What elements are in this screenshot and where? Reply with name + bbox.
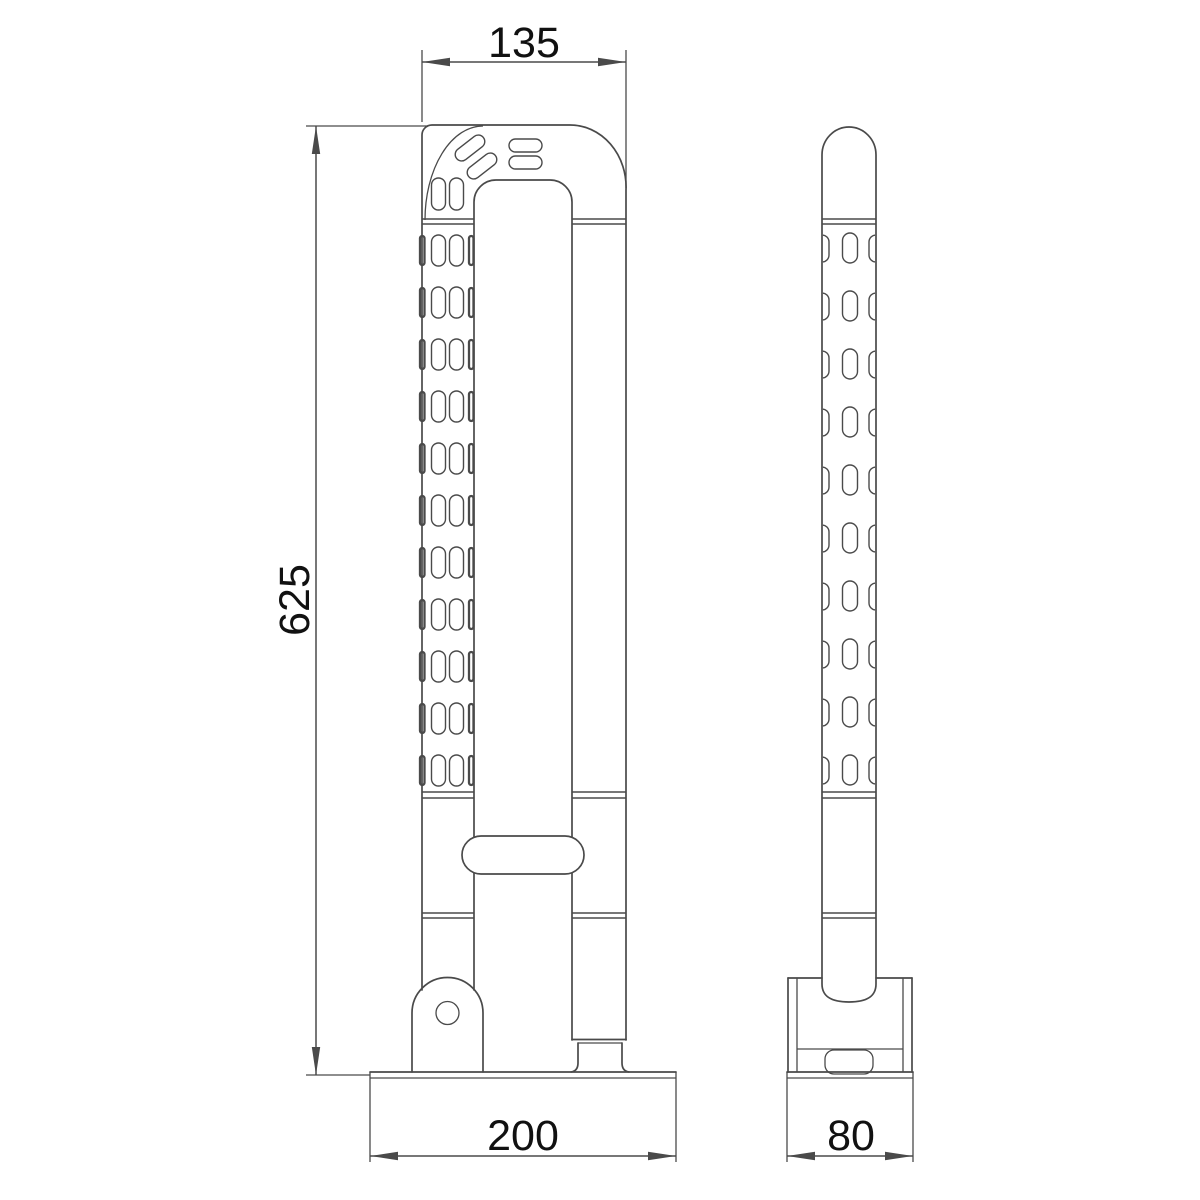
dimension-top-width: 135 <box>422 19 626 188</box>
side-joint-lines <box>822 219 876 918</box>
side-bracket-block <box>825 1050 873 1074</box>
side-tube-outline <box>822 127 876 1002</box>
side-slot-rows <box>813 233 885 785</box>
front-joint-lines <box>422 219 626 918</box>
front-view <box>370 125 676 1162</box>
dimension-height: 625 <box>271 126 428 1075</box>
dimension-base-depth: 80 <box>787 1112 913 1160</box>
drawing-canvas: 135 625 200 80 <box>0 0 1200 1200</box>
front-hinge-bracket <box>412 978 483 1073</box>
dimension-label-top-width: 135 <box>488 19 560 67</box>
side-bracket <box>788 978 912 1074</box>
front-outline <box>422 125 626 1040</box>
dimension-label-height: 625 <box>271 564 319 636</box>
front-inner-cutout <box>474 180 572 1040</box>
dimension-base-length: 200 <box>370 1112 676 1160</box>
front-pivot-crossbar <box>462 836 584 874</box>
dimension-label-base-depth: 80 <box>827 1112 875 1160</box>
hinge-pin-hole <box>436 1002 459 1025</box>
front-foot <box>571 1040 629 1073</box>
front-arm-slot-rows <box>420 235 474 786</box>
dimension-label-base-length: 200 <box>487 1112 559 1160</box>
grab-bar-technical-drawing: 135 625 200 80 <box>0 0 1200 1200</box>
side-view <box>787 127 913 1162</box>
